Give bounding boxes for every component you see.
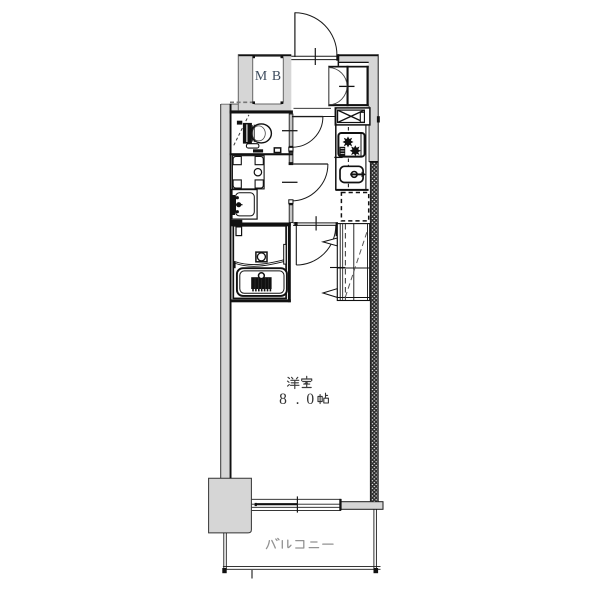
svg-text:0: 0 [306,391,314,408]
svg-text:.: . [296,391,300,408]
svg-text:M B: M B [255,68,282,83]
svg-text:8: 8 [279,391,287,408]
